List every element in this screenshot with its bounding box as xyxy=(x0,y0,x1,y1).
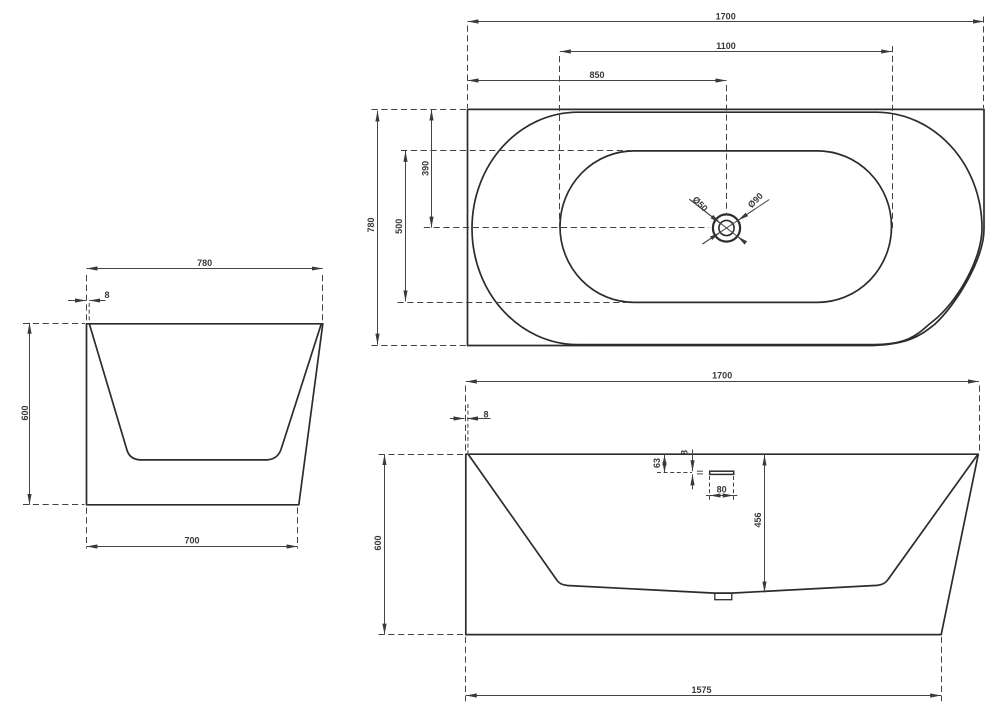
svg-text:8: 8 xyxy=(680,450,690,455)
svg-text:600: 600 xyxy=(373,535,383,550)
svg-text:500: 500 xyxy=(394,219,404,234)
svg-text:850: 850 xyxy=(589,70,604,80)
svg-text:1700: 1700 xyxy=(716,11,736,21)
svg-text:8: 8 xyxy=(104,290,109,300)
svg-text:Ø50: Ø50 xyxy=(691,194,710,213)
svg-text:780: 780 xyxy=(366,217,376,232)
svg-text:600: 600 xyxy=(20,405,30,420)
svg-text:456: 456 xyxy=(753,512,763,527)
svg-text:390: 390 xyxy=(420,161,430,176)
svg-text:700: 700 xyxy=(184,535,199,545)
svg-text:63: 63 xyxy=(652,458,662,468)
svg-text:80: 80 xyxy=(717,485,727,495)
svg-text:1575: 1575 xyxy=(691,685,711,695)
svg-text:780: 780 xyxy=(197,258,212,268)
svg-text:1100: 1100 xyxy=(716,41,736,51)
svg-text:1700: 1700 xyxy=(712,371,732,381)
svg-text:Ø90: Ø90 xyxy=(746,191,765,210)
svg-text:8: 8 xyxy=(483,410,488,420)
